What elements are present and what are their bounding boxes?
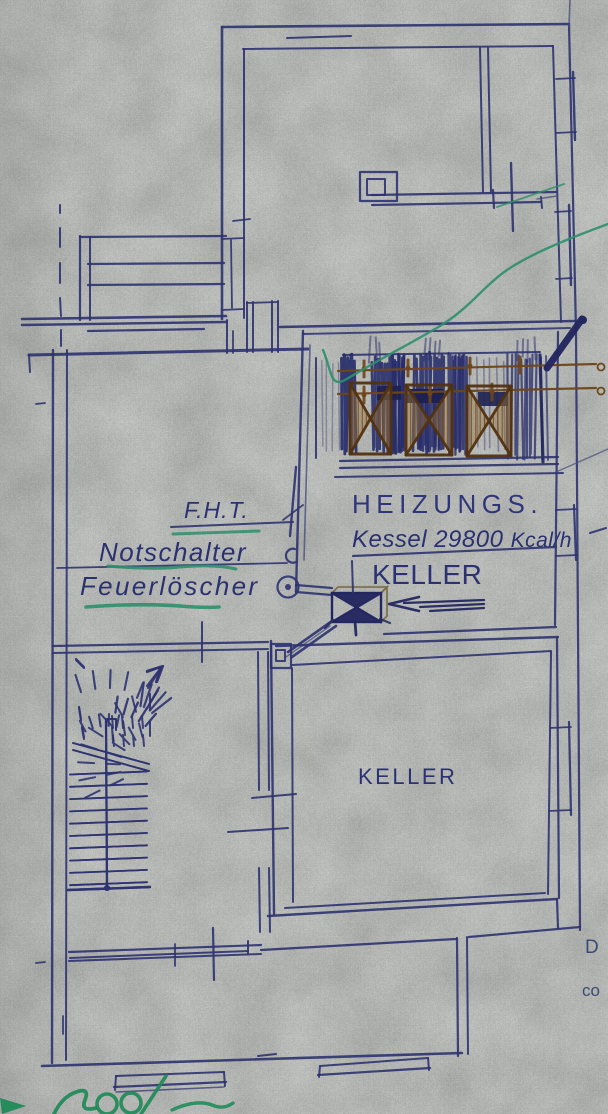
svg-text:D: D bbox=[585, 937, 599, 958]
svg-text:KELLER: KELLER bbox=[372, 559, 482, 590]
svg-text:Notschalter: Notschalter bbox=[99, 537, 247, 567]
svg-text:Feuerlöscher: Feuerlöscher bbox=[80, 571, 259, 601]
svg-text:KELLER: KELLER bbox=[358, 764, 457, 789]
svg-text:F.H.T.: F.H.T. bbox=[184, 497, 249, 523]
svg-text:Kessel 29800 Kcal/h: Kessel 29800 Kcal/h bbox=[352, 526, 572, 553]
svg-text:HEIZUNGS.: HEIZUNGS. bbox=[352, 489, 543, 519]
svg-text:co: co bbox=[582, 981, 600, 1000]
